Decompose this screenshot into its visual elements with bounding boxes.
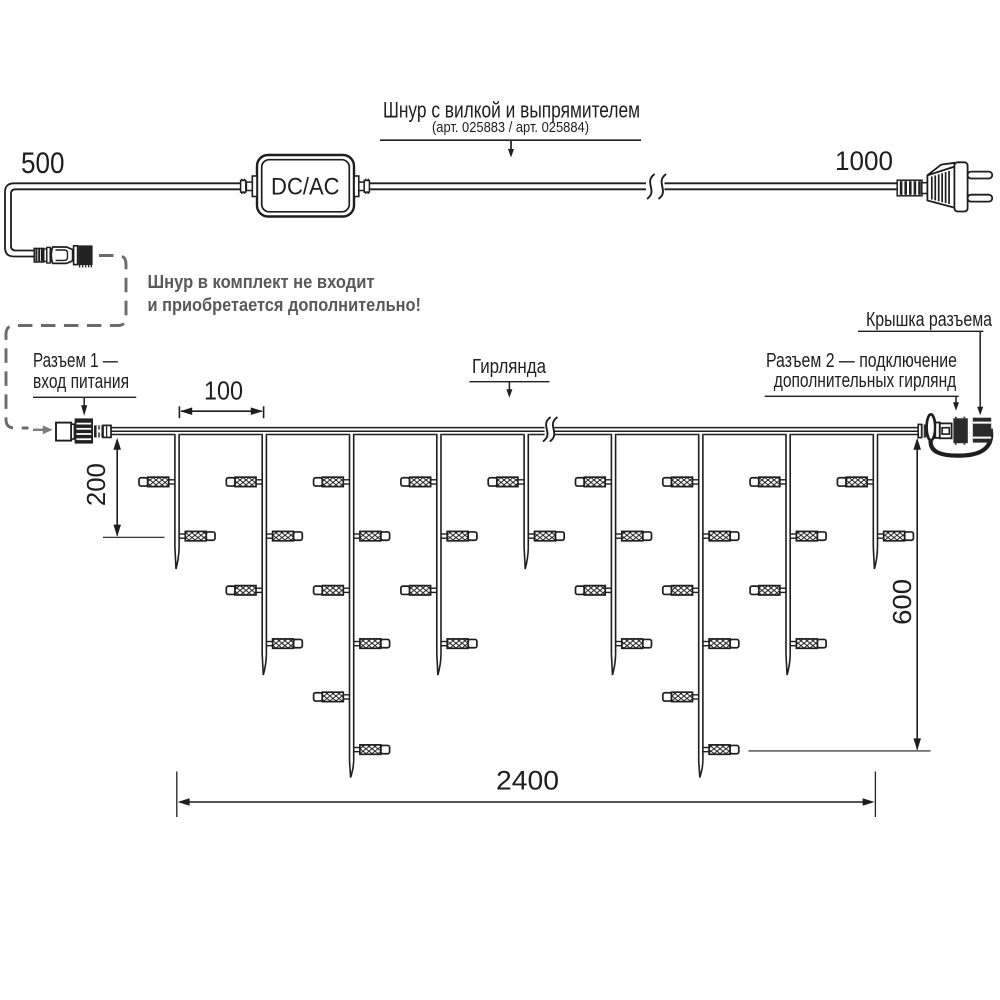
svg-text:500: 500 [21,147,65,180]
svg-text:Гирлянда: Гирлянда [472,356,547,378]
svg-text:вход питания: вход питания [33,371,129,393]
svg-text:600: 600 [887,579,917,625]
svg-text:дополнительных гирлянд: дополнительных гирлянд [774,370,957,392]
svg-text:100: 100 [204,376,243,406]
svg-text:Крышка разъема: Крышка разъема [866,309,993,331]
svg-text:DC/AC: DC/AC [271,174,340,201]
svg-text:Шнур в комплект не входит: Шнур в комплект не входит [148,271,375,292]
svg-text:2400: 2400 [496,766,559,796]
svg-text:Шнур с вилкой и выпрямителем: Шнур с вилкой и выпрямителем [383,98,640,123]
svg-text:1000: 1000 [835,146,893,176]
svg-text:200: 200 [81,463,111,506]
svg-text:(арт. 025883 / арт. 025884): (арт. 025883 / арт. 025884) [432,120,589,136]
svg-text:Разъем 1 —: Разъем 1 — [33,350,118,372]
svg-text:и приобретается дополнительно!: и приобретается дополнительно! [148,294,422,315]
